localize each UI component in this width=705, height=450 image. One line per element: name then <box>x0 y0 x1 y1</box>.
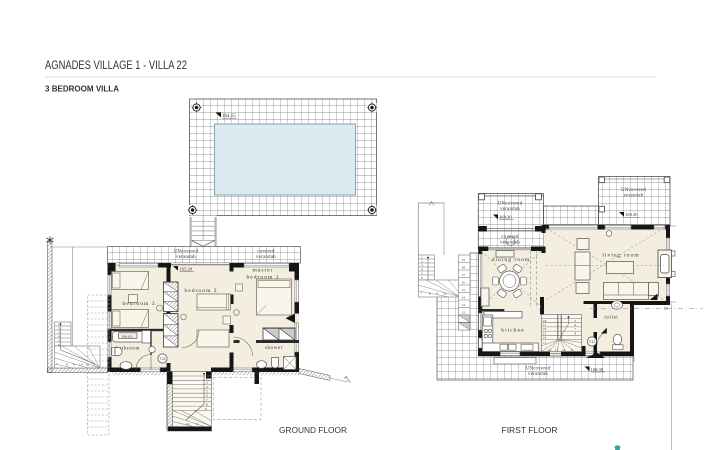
svg-text:12: 12 <box>462 311 466 315</box>
svg-text:168.30: 168.30 <box>625 212 638 217</box>
svg-text:shower: shower <box>265 346 283 351</box>
svg-text:covered: covered <box>257 250 275 255</box>
svg-text:13: 13 <box>462 303 466 307</box>
svg-text:10: 10 <box>562 348 566 352</box>
svg-text:verandah: verandah <box>528 372 548 377</box>
svg-text:bedroom 2: bedroom 2 <box>184 288 217 294</box>
svg-text:15: 15 <box>462 288 466 292</box>
svg-text:V22: V22 <box>589 340 595 344</box>
svg-text:FIRST FLOOR: FIRST FLOOR <box>502 425 558 435</box>
svg-text:verandah: verandah <box>500 207 520 212</box>
svg-text:168.30: 168.30 <box>591 367 604 372</box>
svg-text:14: 14 <box>543 336 547 340</box>
svg-text:7: 7 <box>421 292 423 296</box>
svg-text:verandah: verandah <box>624 194 644 199</box>
svg-text:19: 19 <box>462 258 466 262</box>
svg-text:12: 12 <box>548 348 552 352</box>
svg-text:toilet: toilet <box>605 316 619 321</box>
svg-text:V22: V22 <box>159 357 165 361</box>
svg-text:living room: living room <box>602 253 639 259</box>
svg-text:kitchen: kitchen <box>501 328 524 334</box>
svg-text:verandah: verandah <box>500 241 520 246</box>
svg-text:3 BEDROOM VILLA: 3 BEDROOM VILLA <box>45 85 119 94</box>
svg-text:8: 8 <box>66 363 68 367</box>
svg-text:10: 10 <box>443 292 447 296</box>
svg-text:verandah: verandah <box>176 255 196 260</box>
svg-text:9: 9 <box>436 292 438 296</box>
svg-text:18: 18 <box>462 266 466 270</box>
svg-text:10: 10 <box>79 363 83 367</box>
svg-text:UNcovered: UNcovered <box>526 367 551 372</box>
svg-text:UNcovered: UNcovered <box>174 250 199 255</box>
svg-text:10: 10 <box>186 422 190 426</box>
svg-text:9: 9 <box>73 363 75 367</box>
svg-text:168.30: 168.30 <box>499 215 512 220</box>
svg-text:GROUND FLOOR: GROUND FLOOR <box>279 425 347 435</box>
svg-text:tea ex.: tea ex. <box>122 333 133 338</box>
svg-text:11: 11 <box>555 348 558 352</box>
svg-text:165.20: 165.20 <box>180 266 193 271</box>
svg-text:covered: covered <box>501 235 519 240</box>
svg-text:09: 09 <box>664 307 668 311</box>
svg-text:7: 7 <box>56 363 58 367</box>
svg-text:6: 6 <box>421 276 423 280</box>
svg-text:UNcovered: UNcovered <box>498 202 523 207</box>
svg-text:13: 13 <box>543 341 547 345</box>
svg-text:16: 16 <box>462 281 466 285</box>
svg-text:dining room: dining room <box>492 257 531 263</box>
svg-text:8: 8 <box>429 292 431 296</box>
svg-text:AGNADES VILLAGE 1 - VILLA 22: AGNADES VILLAGE 1 - VILLA 22 <box>45 58 187 72</box>
svg-text:17: 17 <box>462 273 466 277</box>
svg-text:UNcovered: UNcovered <box>621 188 646 193</box>
svg-text:14: 14 <box>462 296 466 300</box>
svg-text:verandah: verandah <box>256 255 276 260</box>
svg-text:master: master <box>253 268 274 274</box>
svg-text:bedroom 3: bedroom 3 <box>122 301 155 307</box>
